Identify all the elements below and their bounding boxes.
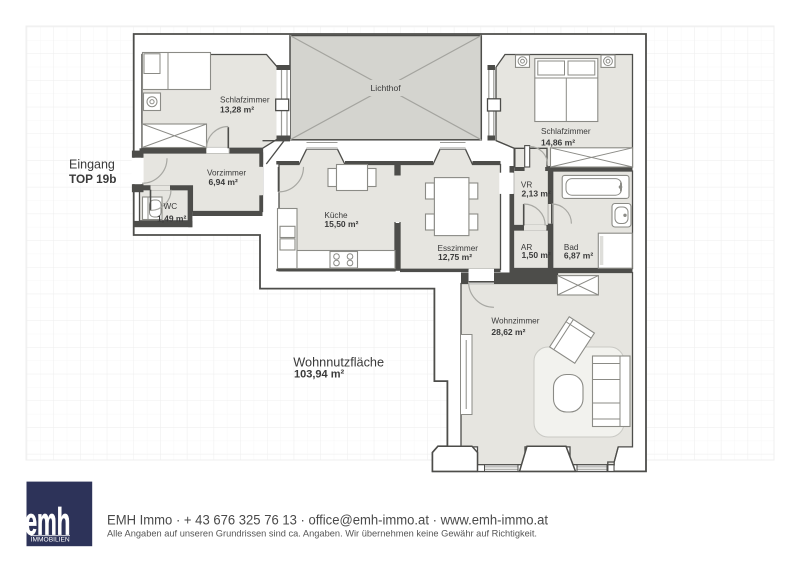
svg-text:2,13 m²: 2,13 m² — [522, 188, 551, 198]
svg-text:WC: WC — [164, 202, 178, 211]
svg-text:6,87 m²: 6,87 m² — [564, 250, 593, 260]
svg-text:Alle Angaben auf unseren Grund: Alle Angaben auf unseren Grundrissen sin… — [107, 529, 537, 540]
svg-text:6,94 m²: 6,94 m² — [209, 177, 238, 187]
svg-text:IMMOBILIEN: IMMOBILIEN — [31, 537, 70, 544]
svg-text:TOP 19b: TOP 19b — [69, 172, 116, 186]
svg-text:103,94 m²: 103,94 m² — [294, 368, 344, 380]
svg-text:Schlafzimmer: Schlafzimmer — [541, 127, 591, 136]
svg-text:Eingang: Eingang — [69, 157, 115, 171]
svg-text:1,49 m²: 1,49 m² — [157, 213, 186, 223]
svg-text:Vorzimmer: Vorzimmer — [207, 168, 246, 177]
svg-text:Lichthof: Lichthof — [371, 83, 402, 93]
svg-text:12,75 m²: 12,75 m² — [438, 252, 472, 262]
svg-text:13,28 m²: 13,28 m² — [220, 104, 254, 114]
svg-text:1,50 m²: 1,50 m² — [522, 250, 551, 260]
svg-text:EMH Immo · + 43 676 325 76 13: EMH Immo · + 43 676 325 76 13 · office@e… — [107, 513, 548, 529]
svg-text:14,86 m²: 14,86 m² — [541, 137, 575, 147]
svg-text:15,50 m²: 15,50 m² — [324, 219, 358, 229]
svg-text:Wohnzimmer: Wohnzimmer — [491, 317, 539, 326]
svg-text:28,62 m²: 28,62 m² — [491, 327, 525, 337]
